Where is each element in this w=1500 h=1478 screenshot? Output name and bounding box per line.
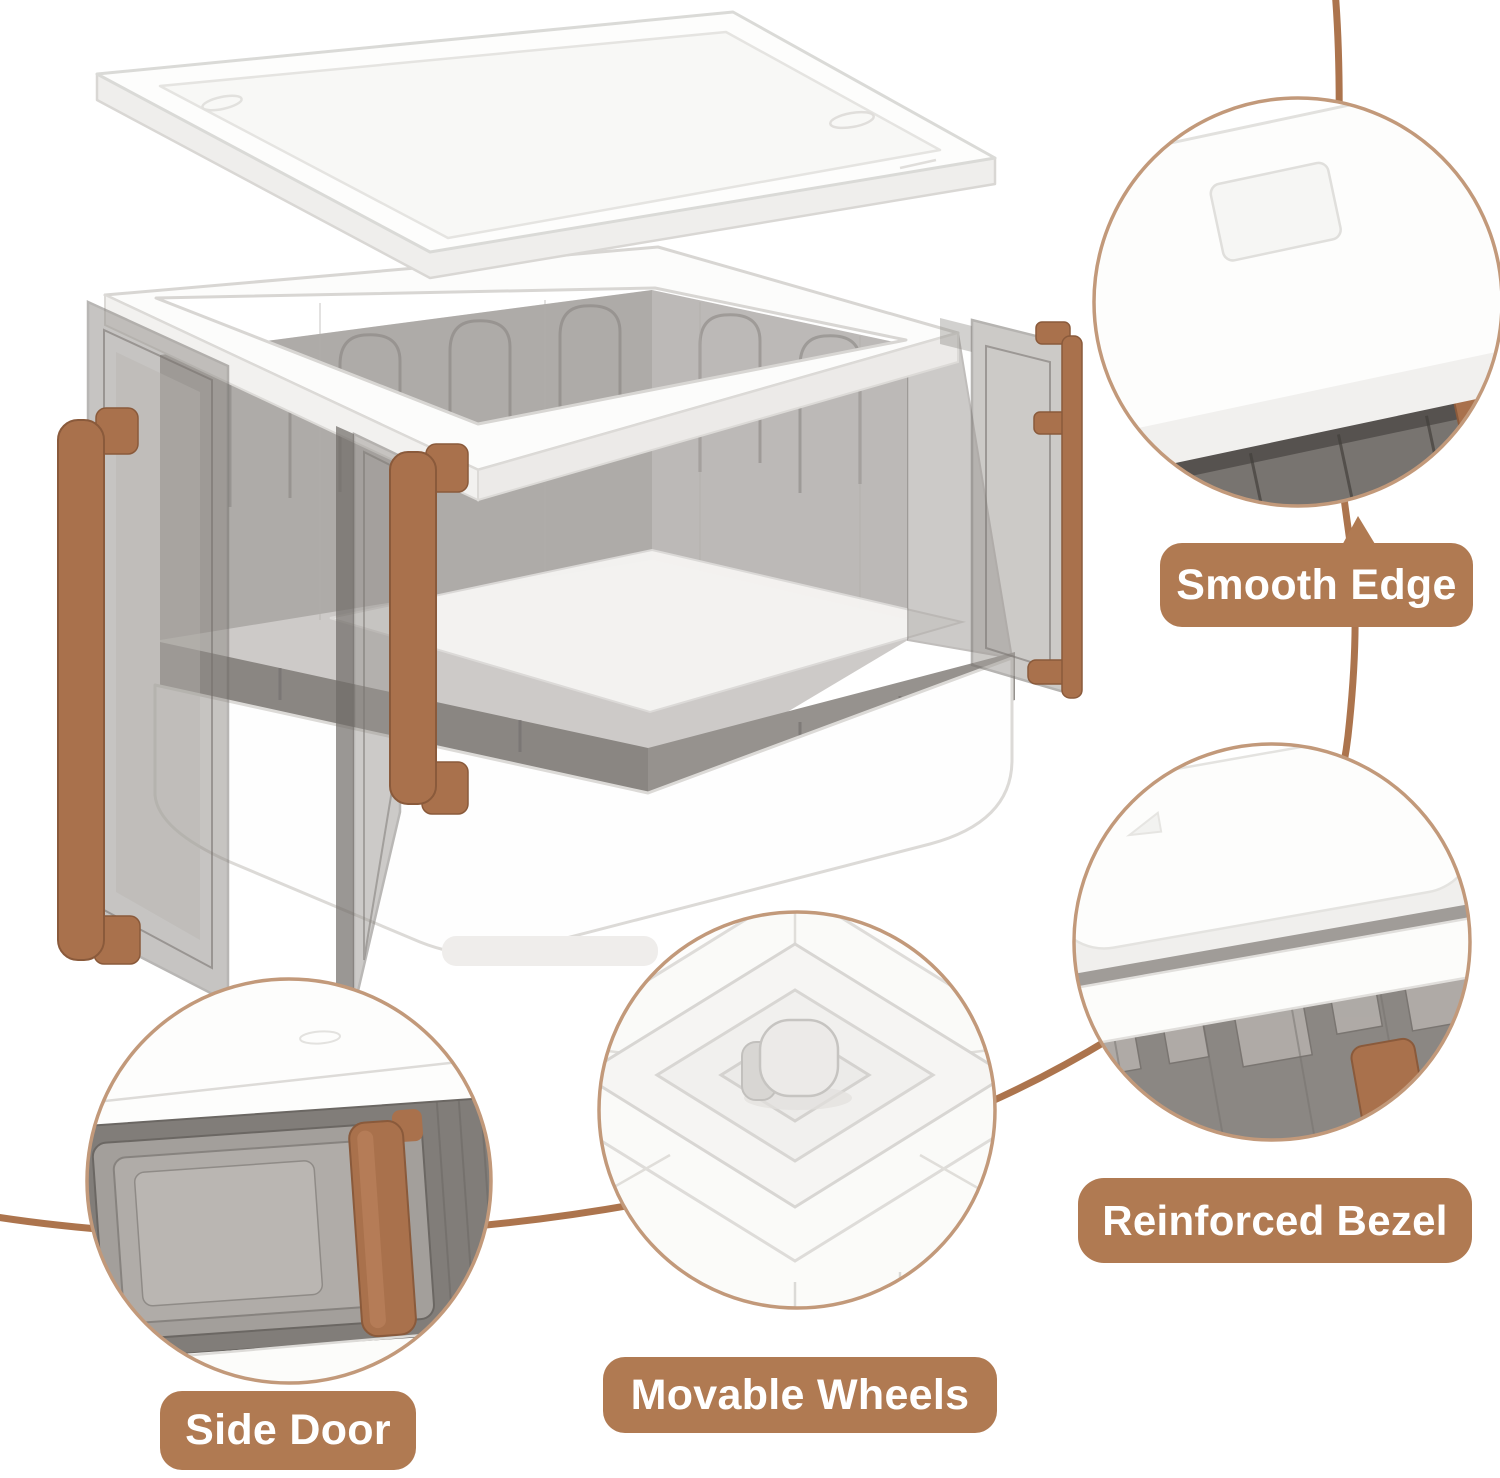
label-smooth-edge: Smooth Edge — [1160, 543, 1473, 627]
label-reinforced-bezel-text: Reinforced Bezel — [1102, 1197, 1448, 1245]
callout-circle-smooth-edge — [1018, 72, 1500, 728]
callout-circle-reinforced-bezel — [1011, 716, 1500, 1225]
product-feature-infographic: Smooth Edge Reinforced Bezel Movable Whe… — [0, 0, 1500, 1478]
label-movable-wheels-text: Movable Wheels — [631, 1371, 970, 1420]
label-movable-wheels: Movable Wheels — [603, 1357, 997, 1433]
base-foot — [442, 936, 658, 966]
product-lid — [97, 12, 995, 278]
label-side-door-text: Side Door — [185, 1406, 391, 1455]
front-door-handle — [390, 452, 436, 804]
left-door — [58, 302, 228, 1002]
closeup-caster-wheel — [760, 1020, 838, 1096]
right-door-handle — [1062, 336, 1082, 698]
label-side-door: Side Door — [160, 1391, 416, 1470]
label-reinforced-bezel: Reinforced Bezel — [1078, 1178, 1472, 1263]
callout-circle-side-door — [42, 964, 543, 1457]
product-image — [58, 12, 1082, 1008]
left-door-handle — [58, 420, 104, 960]
label-smooth-edge-text: Smooth Edge — [1176, 561, 1456, 610]
